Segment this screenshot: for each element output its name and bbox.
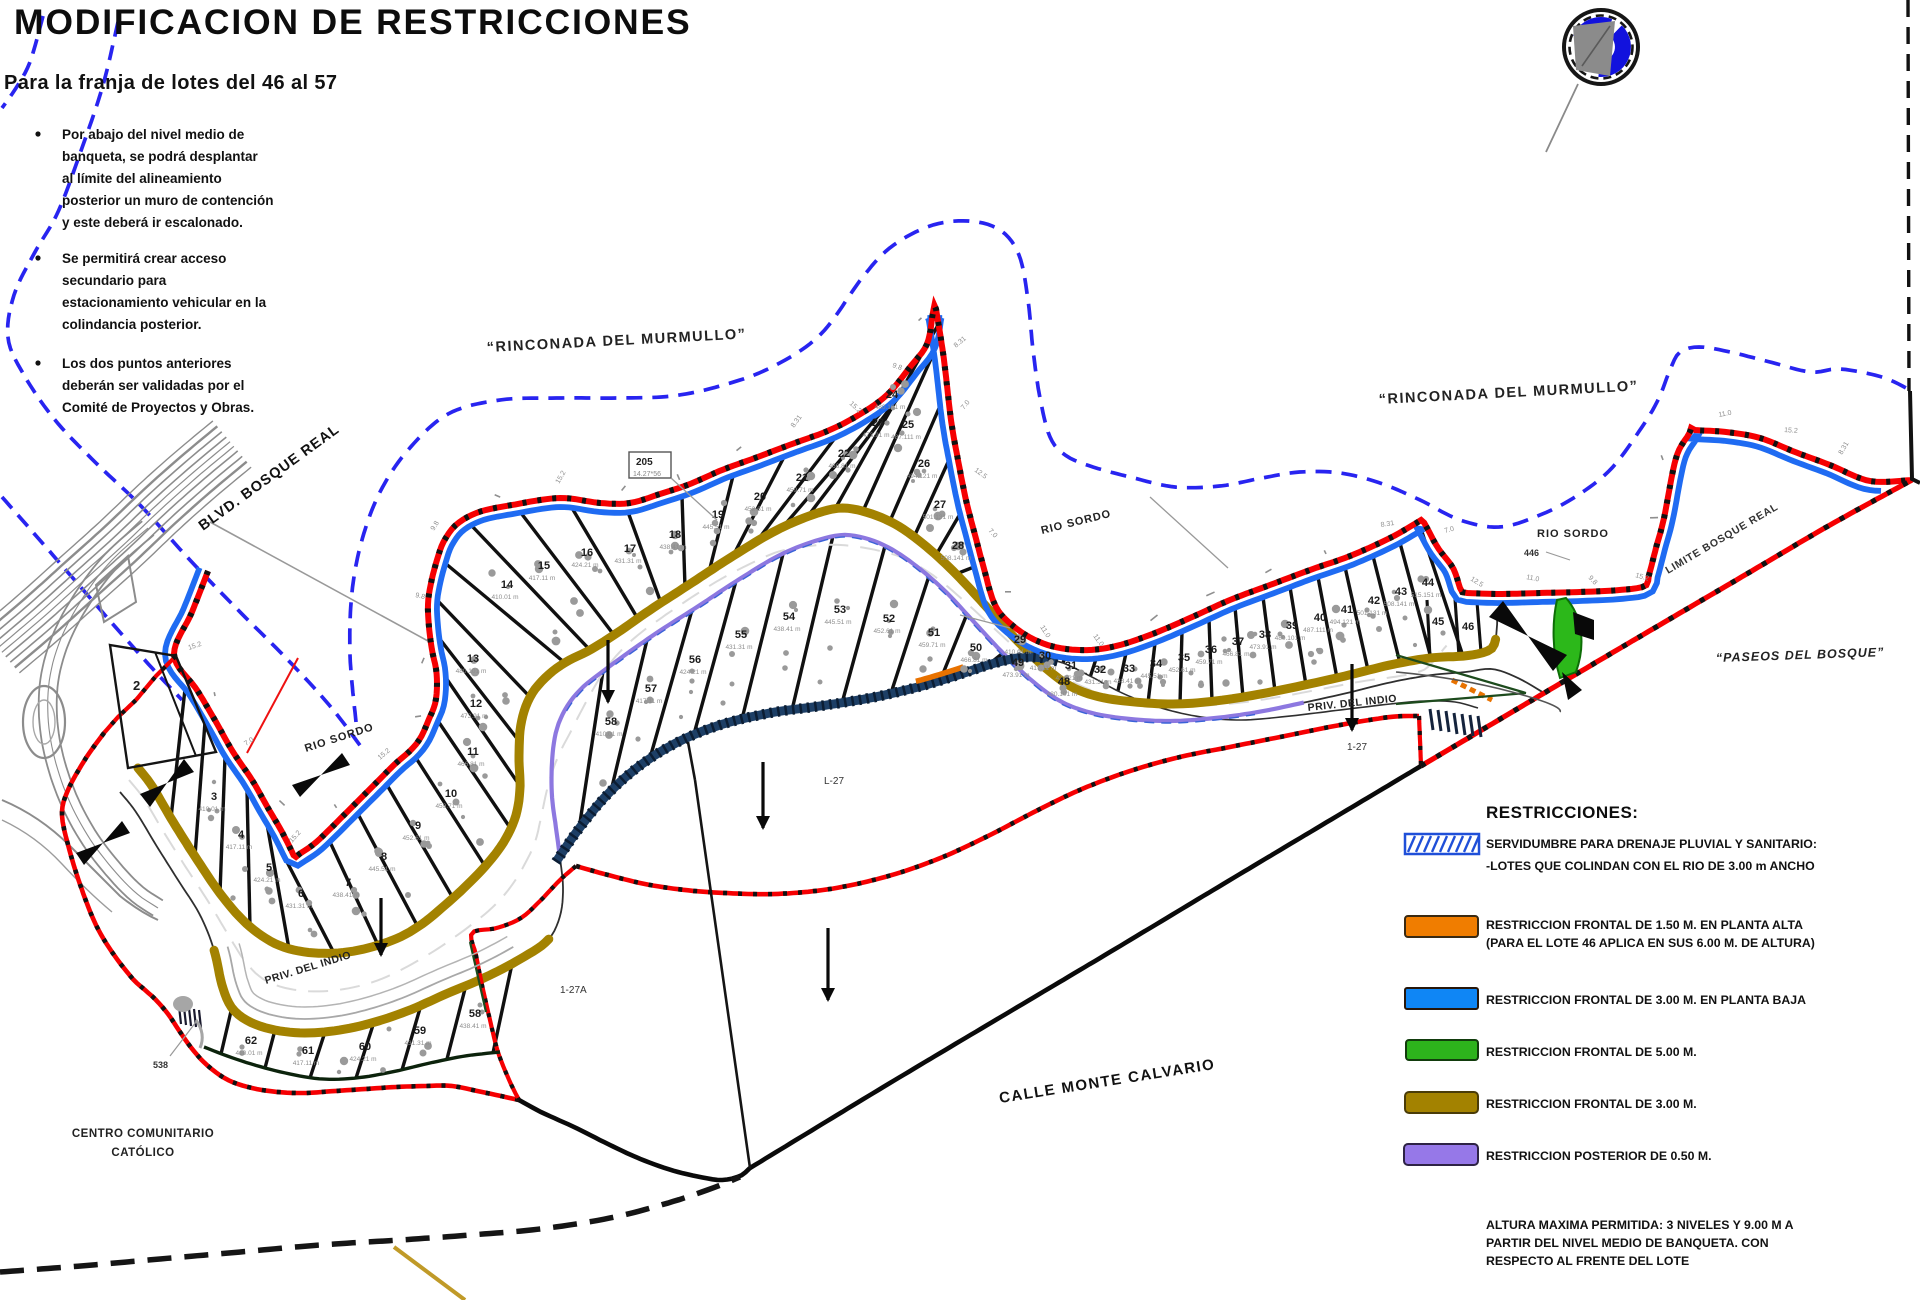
svg-text:(PARA EL LOTE 46 APLICA EN SUS: (PARA EL LOTE 46 APLICA EN SUS 6.00 M. D… [1486, 936, 1815, 950]
svg-text:secundario para: secundario para [62, 273, 167, 288]
svg-text:RESTRICCION POSTERIOR DE 0.50: RESTRICCION POSTERIOR DE 0.50 M. [1486, 1149, 1711, 1163]
svg-text:515.151 m: 515.151 m [1411, 592, 1442, 599]
svg-text:445.51 m: 445.51 m [824, 619, 851, 626]
svg-text:446: 446 [1524, 548, 1539, 558]
svg-text:466.81 m: 466.81 m [828, 463, 855, 470]
svg-text:50: 50 [970, 642, 982, 654]
svg-text:16: 16 [581, 547, 593, 559]
svg-text:2: 2 [133, 678, 140, 693]
svg-text:452.61 m: 452.61 m [744, 506, 771, 513]
svg-text:431.31 m: 431.31 m [1084, 679, 1111, 686]
svg-text:10: 10 [445, 788, 457, 800]
svg-text:RESTRICCION FRONTAL DE 3.00 M.: RESTRICCION FRONTAL DE 3.00 M. EN PLANTA… [1486, 993, 1806, 1007]
svg-text:445.51 m: 445.51 m [1140, 673, 1167, 680]
svg-text:18: 18 [669, 529, 681, 541]
svg-text:459.71 m: 459.71 m [786, 487, 813, 494]
svg-text:17: 17 [624, 543, 636, 555]
svg-text:PARTIR DEL NIVEL MEDIO DE BANQ: PARTIR DEL NIVEL MEDIO DE BANQUETA. CON [1486, 1236, 1769, 1250]
svg-text:60: 60 [359, 1041, 371, 1053]
svg-text:410.01 m: 410.01 m [491, 594, 518, 601]
svg-text:13: 13 [467, 653, 479, 665]
svg-text:28: 28 [952, 540, 964, 552]
svg-text:24: 24 [886, 389, 899, 401]
svg-text:RESTRICCIONES:: RESTRICCIONES: [1486, 803, 1638, 822]
svg-text:494.121 m: 494.121 m [1330, 619, 1361, 626]
svg-text:459.71 m: 459.71 m [435, 803, 462, 810]
svg-text:501.131 m: 501.131 m [1357, 610, 1388, 617]
svg-text:Comité de Proyectos y Obras.: Comité de Proyectos y Obras. [62, 400, 254, 415]
svg-text:49: 49 [1012, 657, 1024, 669]
svg-text:CENTRO COMUNITARIO: CENTRO COMUNITARIO [72, 1128, 214, 1140]
svg-text:40: 40 [1314, 612, 1326, 624]
svg-text:57: 57 [645, 683, 657, 695]
svg-text:33: 33 [1123, 663, 1135, 675]
svg-text:59: 59 [414, 1025, 426, 1037]
svg-text:31: 31 [1065, 660, 1077, 672]
svg-text:29: 29 [1014, 634, 1026, 646]
svg-text:459.71 m: 459.71 m [918, 642, 945, 649]
svg-text:45: 45 [1432, 616, 1444, 628]
svg-text:56: 56 [689, 654, 701, 666]
svg-text:417.11 m: 417.11 m [636, 698, 663, 705]
svg-text:38: 38 [1259, 629, 1271, 641]
svg-text:25: 25 [902, 419, 914, 431]
svg-text:colindancia posterior.: colindancia posterior. [62, 317, 202, 332]
svg-text:42: 42 [1368, 595, 1380, 607]
svg-text:RESTRICCION FRONTAL DE 5.00 M.: RESTRICCION FRONTAL DE 5.00 M. [1486, 1045, 1697, 1059]
svg-text:51: 51 [928, 627, 940, 639]
svg-text:417.11 m: 417.11 m [529, 575, 556, 582]
svg-text:22: 22 [838, 448, 850, 460]
svg-text:CATÓLICO: CATÓLICO [111, 1146, 174, 1159]
svg-text:438.41 m: 438.41 m [459, 1023, 486, 1030]
svg-text:y este deberá ir escalonado.: y este deberá ir escalonado. [62, 215, 243, 230]
svg-text:424.21 m: 424.21 m [571, 562, 598, 569]
svg-text:431.31 m: 431.31 m [285, 903, 312, 910]
svg-text:48: 48 [1058, 676, 1070, 688]
svg-text:480.101 m: 480.101 m [1047, 691, 1078, 698]
svg-text:438.41 m: 438.41 m [659, 544, 686, 551]
svg-text:53: 53 [834, 604, 846, 616]
svg-text:424.21 m: 424.21 m [253, 877, 280, 884]
svg-text:494.121 m: 494.121 m [907, 473, 938, 480]
svg-text:417.11 m: 417.11 m [293, 1060, 320, 1067]
svg-text:30: 30 [1039, 650, 1051, 662]
svg-text:438.41 m: 438.41 m [773, 626, 800, 633]
svg-text:410.01 m: 410.01 m [595, 731, 622, 738]
svg-text:438.41 m: 438.41 m [332, 892, 359, 899]
svg-text:410.01 m: 410.01 m [1004, 649, 1031, 656]
svg-text:205: 205 [636, 457, 653, 468]
svg-text:14.27*56: 14.27*56 [633, 471, 661, 478]
svg-text:431.31 m: 431.31 m [725, 644, 752, 651]
svg-text:410.01 m: 410.01 m [235, 1050, 262, 1057]
svg-text:Los dos puntos anteriores: Los dos puntos anteriores [62, 356, 232, 371]
svg-text:452.61 m: 452.61 m [402, 835, 429, 842]
svg-text:55: 55 [735, 629, 747, 641]
svg-text:466.81 m: 466.81 m [1222, 651, 1249, 658]
svg-text:8: 8 [381, 851, 387, 863]
svg-text:6: 6 [298, 888, 304, 900]
svg-text:480.101 m: 480.101 m [456, 668, 487, 675]
svg-text:RESTRICCION FRONTAL DE 3.00 M.: RESTRICCION FRONTAL DE 3.00 M. [1486, 1097, 1697, 1111]
svg-text:452.61 m: 452.61 m [873, 628, 900, 635]
svg-text:ALTURA MAXIMA PERMITIDA: 3 NIV: ALTURA MAXIMA PERMITIDA: 3 NIVELES Y 9.0… [1486, 1218, 1794, 1232]
svg-text:480.101 m: 480.101 m [1275, 635, 1306, 642]
svg-text:445.51 m: 445.51 m [368, 866, 395, 873]
svg-text:36: 36 [1205, 644, 1217, 656]
svg-text:473.91 m: 473.91 m [460, 713, 487, 720]
svg-text:41: 41 [1341, 604, 1353, 616]
svg-text:Por abajo del nivel medio de: Por abajo del nivel medio de [62, 127, 245, 142]
svg-text:466.81 m: 466.81 m [457, 761, 484, 768]
svg-text:410.01 m: 410.01 m [198, 806, 225, 813]
svg-text:7: 7 [345, 877, 351, 889]
svg-text:445.51 m: 445.51 m [702, 524, 729, 531]
svg-text:466.81 m: 466.81 m [960, 657, 987, 664]
svg-text:al límite del alineamiento: al límite del alineamiento [62, 171, 222, 186]
svg-text:21: 21 [796, 472, 808, 484]
svg-text:473.91 m: 473.91 m [1002, 672, 1029, 679]
svg-text:487.111 m: 487.111 m [891, 434, 921, 441]
svg-text:459.71 m: 459.71 m [1195, 659, 1222, 666]
svg-text:417.11 m: 417.11 m [1030, 665, 1057, 672]
svg-text:501.131 m: 501.131 m [923, 514, 954, 521]
svg-text:RIO SORDO: RIO SORDO [1537, 528, 1609, 540]
svg-text:27: 27 [934, 499, 946, 511]
svg-text:438.41 m: 438.41 m [1113, 678, 1140, 685]
svg-text:46: 46 [1462, 621, 1474, 633]
svg-text:-LOTES QUE COLINDAN CON EL RIO: -LOTES QUE COLINDAN CON EL RIO DE 3.00 m… [1486, 859, 1815, 873]
svg-text:15.2: 15.2 [1784, 427, 1798, 435]
svg-text:19: 19 [712, 509, 724, 521]
svg-text:431.31 m: 431.31 m [404, 1040, 431, 1047]
svg-text:34: 34 [1150, 658, 1163, 670]
svg-text:15: 15 [538, 560, 550, 572]
svg-text:26: 26 [918, 458, 930, 470]
svg-text:52: 52 [883, 613, 895, 625]
svg-text:MODIFICACION DE RESTRICCIONES: MODIFICACION DE RESTRICCIONES [14, 2, 691, 42]
svg-text:11: 11 [467, 746, 479, 758]
svg-text:9: 9 [415, 820, 421, 832]
svg-text:473.91 m: 473.91 m [1249, 644, 1276, 651]
svg-text:posterior un muro de contenció: posterior un muro de contención [62, 193, 274, 208]
svg-text:473.91 m: 473.91 m [862, 432, 889, 439]
svg-text:32: 32 [1094, 664, 1106, 676]
svg-text:1-27: 1-27 [1347, 742, 1367, 753]
svg-text:54: 54 [783, 611, 796, 623]
svg-text:4: 4 [238, 829, 245, 841]
svg-text:23: 23 [872, 417, 884, 429]
svg-text:SERVIDUMBRE PARA DRENAJE PLUVI: SERVIDUMBRE PARA DRENAJE PLUVIAL Y SANIT… [1486, 837, 1817, 851]
svg-text:480.101 m: 480.101 m [875, 404, 906, 411]
svg-text:417.11 m: 417.11 m [226, 844, 253, 851]
svg-text:12: 12 [470, 698, 482, 710]
svg-text:424.21 m: 424.21 m [679, 669, 706, 676]
svg-text:estacionamiento vehicular en l: estacionamiento vehicular en la [62, 295, 267, 310]
svg-text:3: 3 [211, 791, 217, 803]
svg-text:RESTRICCION FRONTAL DE 1.50 M.: RESTRICCION FRONTAL DE 1.50 M. EN PLANTA… [1486, 918, 1803, 932]
svg-text:39: 39 [1286, 620, 1298, 632]
svg-text:L-27: L-27 [824, 776, 844, 787]
svg-text:508.141 m: 508.141 m [941, 555, 972, 562]
svg-text:487.111 m: 487.111 m [1303, 627, 1333, 634]
svg-text:Para la franja de lotes del 46: Para la franja de lotes del 46 al 57 [4, 72, 337, 94]
svg-text:35: 35 [1178, 652, 1190, 664]
svg-text:58: 58 [469, 1008, 481, 1020]
svg-text:deberán ser validadas por el: deberán ser validadas por el [62, 378, 244, 393]
svg-text:62: 62 [245, 1035, 257, 1047]
svg-text:5: 5 [266, 862, 272, 874]
svg-text:RESPECTO AL FRENTE DEL LOTE: RESPECTO AL FRENTE DEL LOTE [1486, 1254, 1689, 1268]
svg-text:37: 37 [1232, 636, 1244, 648]
svg-text:14: 14 [501, 579, 514, 591]
svg-text:1-27A: 1-27A [560, 985, 587, 996]
svg-text:538: 538 [153, 1060, 168, 1070]
svg-text:Se permitirá crear acceso: Se permitirá crear acceso [62, 251, 226, 266]
svg-text:61: 61 [302, 1045, 314, 1057]
svg-text:20: 20 [754, 491, 766, 503]
svg-text:58: 58 [605, 716, 617, 728]
svg-text:424.21 m: 424.21 m [349, 1056, 376, 1063]
svg-text:44: 44 [1422, 577, 1435, 589]
svg-text:43: 43 [1395, 586, 1407, 598]
svg-text:508.141 m: 508.141 m [1384, 601, 1415, 608]
svg-text:452.61 m: 452.61 m [1168, 667, 1195, 674]
svg-text:banqueta, se podrá desplantar: banqueta, se podrá desplantar [62, 149, 259, 164]
svg-text:431.31 m: 431.31 m [614, 558, 641, 565]
